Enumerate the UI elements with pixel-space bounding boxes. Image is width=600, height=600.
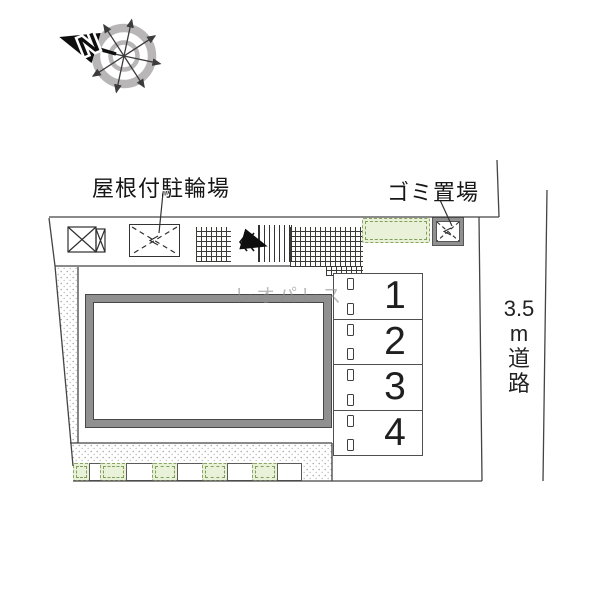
parking-dash-mark	[347, 439, 354, 451]
planter-gap	[277, 463, 302, 481]
boundary-left	[49, 218, 73, 466]
boundary-right	[479, 217, 482, 481]
parking-dash-mark	[347, 415, 354, 427]
stipple-bottom-right-stub	[302, 463, 332, 481]
site-plan: 1 2 3 4 屋根付駐輪場 ゴミ置場 3.5 m 道 路 レオパレ	[0, 0, 600, 600]
road-edge-north	[497, 160, 499, 217]
parking-dash-mark	[347, 303, 354, 315]
watermark-text: レオパレス	[234, 281, 344, 308]
stipple-left-wedge	[56, 267, 78, 443]
planter-gap	[227, 463, 253, 481]
crossed-box-group	[68, 227, 105, 252]
parking-dash-mark	[347, 348, 354, 360]
planter-gap	[177, 463, 203, 481]
parking-space-3: 3	[334, 365, 422, 411]
crossed-box-large	[68, 227, 96, 252]
planter-box	[202, 463, 228, 481]
planting-strip-top	[362, 218, 430, 243]
road-width-unit: m	[510, 321, 528, 346]
parking-space-1: 1	[334, 274, 422, 320]
paved-area-left	[196, 227, 231, 262]
road-edge-right	[543, 190, 547, 481]
stipple-bottom-band	[70, 443, 332, 463]
parking-space-number: 3	[374, 365, 416, 410]
north-label: N	[74, 27, 103, 62]
crossed-box-large-x	[68, 227, 96, 252]
bicycle-parking-box	[129, 224, 180, 257]
road-width-value: 3.5	[504, 296, 535, 321]
entrance-stairs	[258, 225, 292, 262]
parking-space-number: 4	[374, 411, 416, 456]
parking-space-number: 2	[374, 320, 416, 365]
road-kanji-1: 道	[508, 346, 530, 371]
parking-dash-mark	[347, 394, 354, 406]
bicycle-parking-label: 屋根付駐輪場	[92, 171, 230, 203]
planter-box	[252, 463, 278, 481]
parking-space-4: 4	[334, 411, 422, 456]
north-arrow	[66, 39, 116, 54]
planter-box	[100, 463, 127, 481]
parking-lot: 1 2 3 4	[333, 273, 423, 456]
parking-dash-mark	[347, 278, 354, 290]
paved-area-right	[290, 227, 363, 267]
parking-space-2: 2	[334, 320, 422, 366]
parking-dash-mark	[347, 369, 354, 381]
building-outline	[86, 295, 331, 427]
parking-space-number: 1	[374, 274, 416, 319]
planter-box	[73, 463, 90, 481]
garbage-area-label: ゴミ置場	[387, 175, 479, 207]
planter-gap	[126, 463, 153, 481]
crossed-box-small-x	[96, 229, 105, 252]
garbage-area-box	[433, 218, 463, 245]
parking-dash-mark	[347, 324, 354, 336]
road-width-label: 3.5 m 道 路	[499, 296, 539, 396]
planter-box	[152, 463, 178, 481]
road-kanji-2: 路	[508, 371, 530, 396]
compass-icon: N	[66, 12, 168, 100]
crossed-box-small	[96, 229, 105, 252]
